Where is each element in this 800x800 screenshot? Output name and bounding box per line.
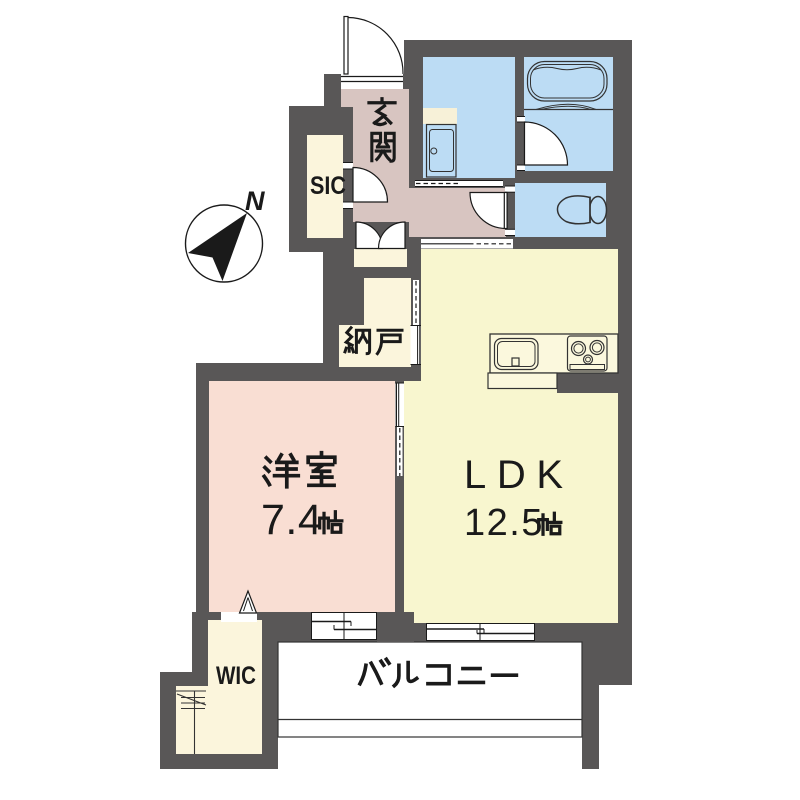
svg-text:12.5: 12.5 xyxy=(464,502,544,544)
svg-text:LDK: LDK xyxy=(464,453,563,497)
svg-text:7.4: 7.4 xyxy=(261,496,322,544)
svg-text:SIC: SIC xyxy=(310,172,346,200)
svg-text:WIC: WIC xyxy=(216,662,256,690)
svg-text:N: N xyxy=(245,186,265,216)
